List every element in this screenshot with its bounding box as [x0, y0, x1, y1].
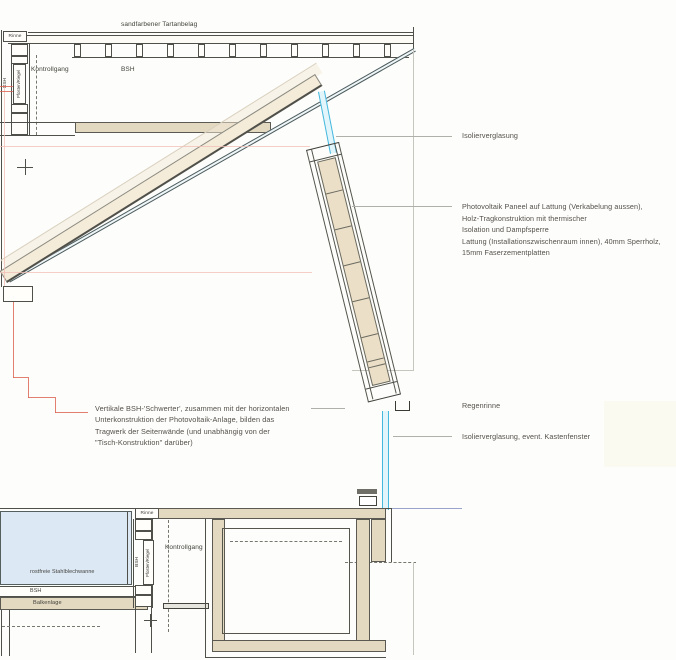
deck-top-line [28, 32, 414, 33]
annotation-schwerter-line: Vertikale BSH-'Schwerter', zusammen mit … [95, 403, 290, 414]
channel-dashed-line [230, 541, 342, 542]
deck-post [353, 44, 360, 57]
axis-line [168, 520, 169, 632]
architectural-section-drawing: sandfarbener Tartanbelag Rinne Kontrollg… [0, 0, 676, 660]
annotation-schwerter-line: "Tisch-Konstruktion" darüber) [95, 437, 290, 448]
deck-post [384, 44, 391, 57]
lower-wall-line [151, 607, 152, 653]
annotation-schwerter-block: Vertikale BSH-'Schwerter', zusammen mit … [95, 403, 290, 448]
deck-post [229, 44, 236, 57]
red-tick [0, 91, 13, 92]
annotation-isolierverglasung: Isolierverglasung [462, 130, 518, 142]
red-step-line [28, 377, 29, 398]
pv-core-rung [335, 225, 352, 230]
glazing-strip-lower [382, 411, 389, 510]
balkenlage-band [0, 597, 148, 610]
label-rinne-bottom: Rinne [140, 511, 153, 516]
deck-post [105, 44, 112, 57]
deck-underline [72, 57, 409, 58]
lower-wall-line [135, 607, 136, 653]
annotation-photovoltaik-line: Lattung (Installationszwischenraum innen… [462, 236, 661, 248]
slab-line [0, 122, 75, 123]
mullion-block [135, 595, 152, 607]
leader-schwerter [311, 408, 345, 409]
annotation-photovoltaik-line: Photovoltaik Paneel auf Lattung (Verkabe… [462, 201, 661, 213]
label-bsh-top: BSH [121, 66, 135, 73]
pv-core-rung [352, 297, 369, 302]
annotation-photovoltaik-block: Photovoltaik Paneel auf Lattung (Verkabe… [462, 201, 661, 259]
pv-panel-assembly [306, 142, 401, 403]
pv-core-rung [326, 189, 343, 194]
label-bsh-vertical-bottom: BSH [136, 557, 141, 567]
channel-outer-line [205, 519, 206, 658]
pv-core-rung [369, 363, 386, 368]
walkway-step-bar [163, 603, 209, 609]
cross-marker [150, 614, 151, 627]
deck-post [136, 44, 143, 57]
construction-line-vertical [413, 50, 414, 371]
deck-post [167, 44, 174, 57]
mullion-block [11, 113, 28, 135]
axis-line-purple [389, 508, 462, 509]
bsh-band-bottom [0, 586, 146, 597]
lower-wall-line [9, 610, 10, 656]
diagonal-bsh-beam [0, 74, 322, 283]
label-pfosten-riegel-bottom: Pfosten/Riegel [146, 549, 150, 577]
construction-line-pink [4, 85, 5, 300]
rinne-box-bottom: Rinne [135, 508, 159, 519]
deck-post [260, 44, 267, 57]
label-stahlblechwanne: rostfreie Stahlblechwanne [30, 569, 95, 575]
red-tick [0, 86, 13, 87]
leader-isolierverglasung [336, 136, 452, 137]
mullion-block [11, 56, 28, 64]
construction-line-pink [0, 272, 312, 273]
pv-core-rung [344, 261, 361, 266]
mullion-block [11, 104, 28, 113]
annotation-kastenfenster: Isolierverglasung, event. Kastenfenster [462, 431, 590, 443]
red-step-line [13, 300, 14, 378]
construction-line-pink [0, 146, 310, 147]
red-step-line [55, 397, 56, 413]
annotation-photovoltaik-line: Holz-Tragkonstruktion mit thermischer [462, 213, 661, 225]
channel-right-wall [356, 519, 370, 652]
label-tartanbelag: sandfarbener Tartanbelag [121, 21, 197, 28]
axis-line-dashed [2, 626, 100, 627]
label-rinne-top: Rinne [8, 34, 21, 39]
bsh-vertical-top: BSH [1, 66, 11, 100]
eaves-detail-box [3, 286, 33, 302]
annotation-photovoltaik-line: 15mm Faserzementplatten [462, 247, 661, 259]
pfosten-riegel-box-bottom: Pfosten/Riegel [143, 540, 154, 585]
deck-post [322, 44, 329, 57]
background-tint-patch [604, 401, 676, 467]
label-balkenlage: Balkenlage [33, 600, 62, 606]
mullion-block [135, 585, 152, 595]
mullion-block [135, 531, 152, 540]
deck-post [198, 44, 205, 57]
bracket-box [359, 496, 377, 506]
label-kontrollgang-bottom: Kontrollgang [165, 544, 203, 551]
channel-top-band [158, 508, 386, 519]
deck-post [74, 44, 81, 57]
red-step-line [55, 412, 88, 413]
axis-line [36, 55, 37, 135]
construction-line-vertical [413, 562, 414, 655]
deck-post [291, 44, 298, 57]
bsh-vertical-bottom: BSH [134, 545, 143, 579]
pv-core-rung [367, 357, 384, 362]
rain-gutter-profile [395, 401, 410, 411]
deck-band [8, 35, 414, 44]
cross-marker [25, 159, 26, 175]
annotation-regenrinne: Regenrinne [462, 400, 500, 412]
leader-photovoltaik [352, 206, 452, 207]
leader-kastenfenster [393, 436, 452, 437]
mullion-block [11, 44, 28, 56]
mullion-block [135, 519, 152, 531]
bracket-detail [357, 489, 377, 494]
facade-outer-line [391, 508, 392, 562]
annotation-schwerter-line: Tragwerk der Seitenwände (und unabhängig… [95, 426, 290, 437]
annotation-photovoltaik-line: Isolation und Dampfsperre [462, 224, 661, 236]
slab-line [0, 135, 75, 136]
basin-inner-line [127, 512, 128, 584]
label-pfosten-riegel-top: Pfosten/Riegel [17, 70, 21, 98]
red-step-line [28, 397, 55, 398]
annotation-schwerter-line: Unterkonstruktion der Photovoltaik-Anlag… [95, 414, 290, 425]
red-step-line [13, 377, 28, 378]
label-bsh-bottom: BSH [30, 588, 41, 594]
channel-bottom [212, 640, 386, 652]
pv-core-rung [361, 333, 378, 338]
pv-wood-core [317, 157, 391, 386]
pfosten-riegel-box-top: Pfosten/Riegel [13, 64, 26, 104]
channel-inner-face [222, 528, 350, 634]
rinne-box-top: Rinne [3, 31, 27, 42]
outer-facade-wall [371, 519, 386, 562]
channel-outer-line [205, 657, 386, 658]
lower-wall-line [1, 610, 2, 656]
